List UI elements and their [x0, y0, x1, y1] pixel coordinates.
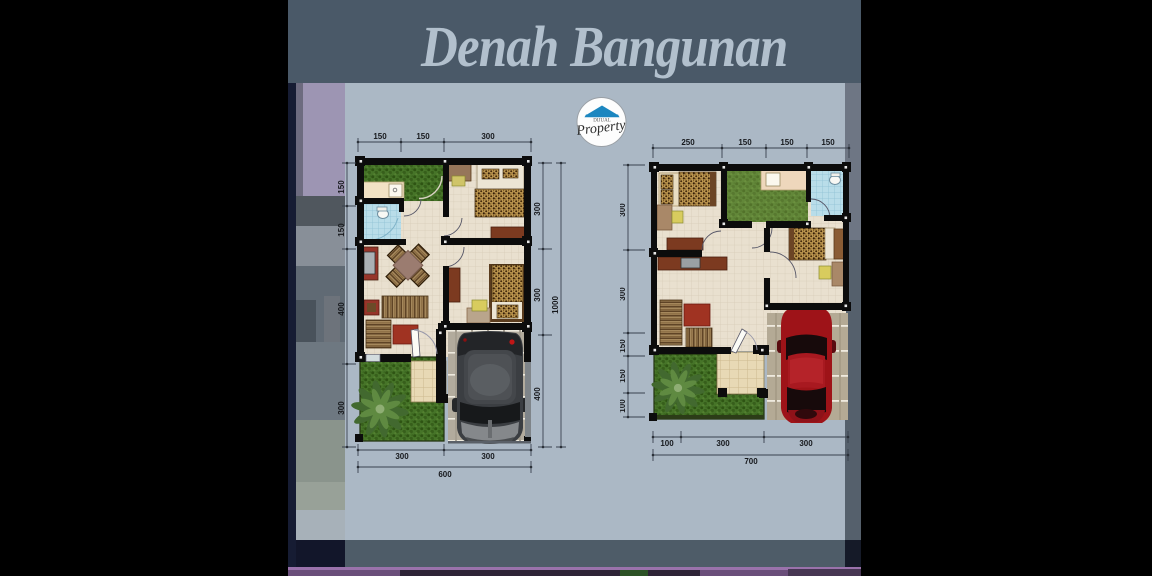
svg-text:250: 250 — [681, 138, 695, 147]
svg-text:150: 150 — [337, 223, 346, 237]
svg-text:300: 300 — [395, 452, 409, 461]
svg-text:300: 300 — [620, 203, 627, 217]
svg-text:300: 300 — [716, 439, 730, 448]
svg-text:150: 150 — [373, 132, 387, 141]
svg-text:700: 700 — [744, 457, 758, 466]
svg-text:300: 300 — [481, 452, 495, 461]
svg-text:300: 300 — [337, 401, 346, 415]
svg-text:300: 300 — [481, 132, 495, 141]
svg-text:300: 300 — [620, 287, 627, 301]
svg-text:100: 100 — [660, 439, 674, 448]
svg-text:150: 150 — [337, 180, 346, 194]
svg-text:300: 300 — [799, 439, 813, 448]
svg-text:150: 150 — [416, 132, 430, 141]
svg-text:100: 100 — [620, 399, 627, 413]
svg-text:150: 150 — [738, 138, 752, 147]
svg-text:150: 150 — [821, 138, 835, 147]
svg-text:150: 150 — [620, 369, 627, 383]
svg-text:150: 150 — [620, 339, 627, 353]
svg-text:300: 300 — [533, 288, 542, 302]
svg-text:1000: 1000 — [551, 296, 560, 314]
svg-text:600: 600 — [438, 470, 452, 479]
svg-text:300: 300 — [533, 202, 542, 216]
svg-text:400: 400 — [337, 302, 346, 316]
svg-text:400: 400 — [533, 387, 542, 401]
svg-text:150: 150 — [780, 138, 794, 147]
